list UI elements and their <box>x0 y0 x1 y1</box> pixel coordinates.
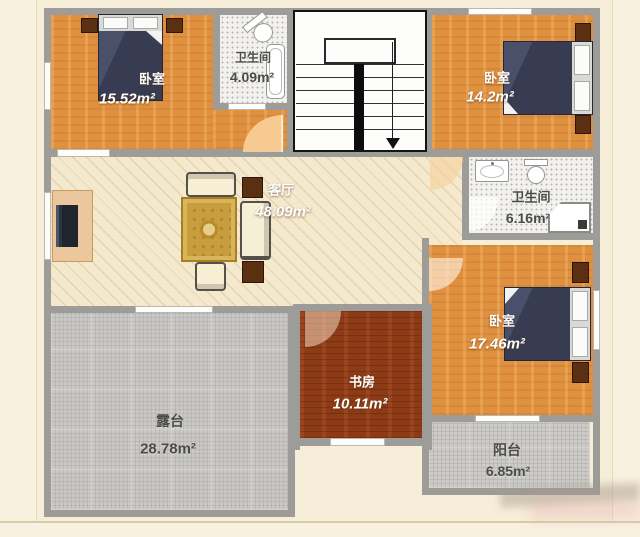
balcony-area-label: 6.85m² <box>486 463 530 479</box>
study-name-label: 书房 <box>349 372 375 391</box>
wall-bed3-left <box>422 238 429 422</box>
tv-icon <box>56 205 78 247</box>
nightstand-icon <box>575 23 591 42</box>
bathroom2-area-label: 6.16m² <box>506 210 550 226</box>
window-balcony-top <box>475 415 540 422</box>
window-living-left <box>44 192 51 260</box>
wall-bed1-bath1 <box>213 8 220 110</box>
bedroom1-name-label: 卧室 <box>139 69 165 88</box>
window-study-bottom <box>330 438 385 446</box>
bedroom3-name-label: 卧室 <box>489 311 515 330</box>
floor-plan-canvas: 卧室 15.52m² 卫生间 4.09m² 卧室 14.2m² 卫生间 6.16… <box>0 0 640 537</box>
page-bottom-margin <box>0 523 640 537</box>
bathroom2-name-label: 卫生间 <box>511 187 550 206</box>
window-bedroom2-top <box>468 8 532 15</box>
wall-balcony-left <box>422 415 429 495</box>
nightstand-icon <box>166 18 183 33</box>
toilet-icon <box>524 159 548 185</box>
sink-icon <box>475 160 509 182</box>
window-terrace-door <box>135 306 213 313</box>
double-bed-icon <box>504 42 592 114</box>
bedroom1-area-label: 15.52m² <box>99 91 155 108</box>
living-room-name-label: 客厅 <box>268 180 294 199</box>
rug <box>181 197 237 262</box>
staircase <box>293 10 427 152</box>
wall-study-top <box>293 304 432 311</box>
wall-bath2-bottom <box>462 233 600 240</box>
bathroom1-area-label: 4.09m² <box>230 69 274 85</box>
nightstand-icon <box>572 262 589 283</box>
balcony-name-label: 阳台 <box>493 440 521 460</box>
armchair-icon <box>195 262 226 291</box>
window-bedroom1-bottom <box>57 149 110 157</box>
bathroom1-name-label: 卫生间 <box>235 49 271 66</box>
stair-center-stringer <box>354 64 364 150</box>
nightstand-icon <box>81 18 98 33</box>
stair-upper-flight <box>324 38 396 64</box>
bedroom3-area-label: 17.46m² <box>469 336 525 353</box>
terrace-name-label: 露台 <box>156 411 184 431</box>
wall-study-left <box>293 304 300 450</box>
window-bathroom1-sill <box>228 103 266 110</box>
study-area-label: 10.11m² <box>333 396 388 413</box>
bedroom2-area-label: 14.2m² <box>466 89 514 106</box>
terrace-area-label: 28.78m² <box>140 441 196 458</box>
nightstand-icon <box>572 362 589 383</box>
watermark-smudge <box>530 498 640 520</box>
stair-down-arrow-icon <box>386 138 400 149</box>
page-left-margin <box>0 0 37 537</box>
side-table-icon <box>242 261 264 283</box>
wall-terrace-bottom <box>44 510 295 517</box>
bedroom2-name-label: 卧室 <box>484 68 510 87</box>
living-room-area-label: 48.09m² <box>255 204 311 221</box>
side-table-icon <box>242 177 263 198</box>
page-right-margin <box>612 0 640 537</box>
window-bedroom1-left <box>44 62 51 110</box>
nightstand-icon <box>575 115 591 134</box>
wall-bath2-left <box>462 157 469 240</box>
sofa-icon <box>186 172 236 197</box>
stair-guide-line <box>392 42 393 138</box>
window-bedroom3-right <box>593 290 600 350</box>
